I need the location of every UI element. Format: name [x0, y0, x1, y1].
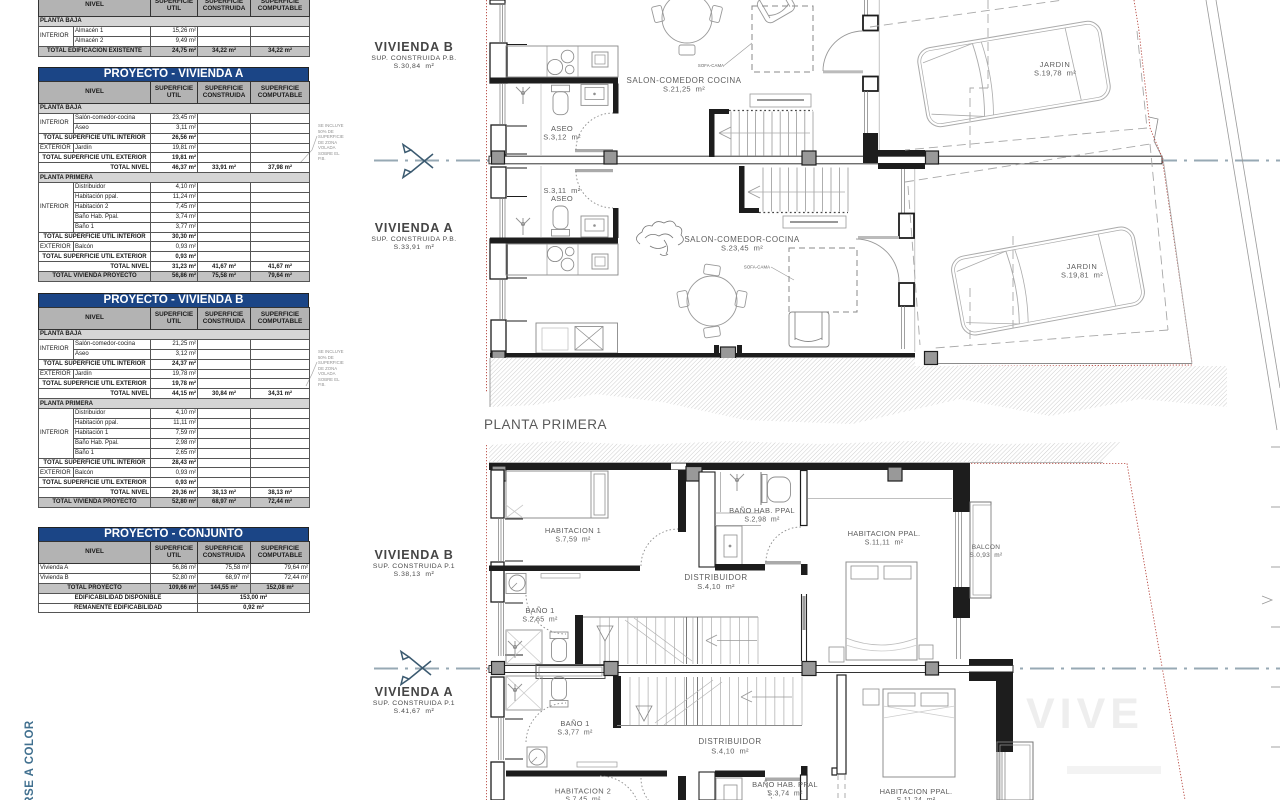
svg-text:VIVE: VIVE: [1026, 690, 1144, 738]
svg-text:HABITACION PPAL.: HABITACION PPAL.: [848, 529, 921, 538]
svg-text:S.3,12 m²: S.3,12 m²: [543, 133, 581, 142]
svg-text:HABITACION PPAL.: HABITACION PPAL.: [880, 787, 953, 796]
svg-text:BALCON: BALCON: [972, 544, 1001, 551]
svg-text:HABITACION 2: HABITACION 2: [555, 787, 611, 796]
svg-text:PLANTA PRIMERA: PLANTA PRIMERA: [484, 417, 607, 432]
svg-text:BAÑO 1: BAÑO 1: [560, 719, 589, 728]
svg-text:S.7,45 m²: S.7,45 m²: [565, 797, 601, 800]
svg-text:S.4,10 m²: S.4,10 m²: [711, 747, 749, 756]
svg-text:S.7,59 m²: S.7,59 m²: [555, 537, 591, 544]
svg-text:BAÑO HAB. PPAL: BAÑO HAB. PPAL: [752, 780, 818, 789]
svg-text:S.3,74 m²: S.3,74 m²: [767, 791, 803, 798]
svg-text:S.4,10 m²: S.4,10 m²: [697, 582, 735, 591]
svg-text:S.2,65 m²: S.2,65 m²: [522, 617, 558, 624]
svg-text:S.19,81 m²: S.19,81 m²: [1061, 271, 1103, 280]
svg-text:S.23,45 m²: S.23,45 m²: [721, 244, 763, 253]
svg-text:SOFA-CAMA: SOFA-CAMA: [744, 265, 770, 270]
svg-text:DISTRIBUIDOR: DISTRIBUIDOR: [684, 573, 747, 582]
svg-text:S.0,93 m²: S.0,93 m²: [970, 552, 1004, 559]
svg-text:S.11,11 m²: S.11,11 m²: [865, 540, 904, 547]
svg-text:SOFA-CAMA: SOFA-CAMA: [698, 63, 724, 68]
svg-text:S.2,98 m²: S.2,98 m²: [744, 517, 780, 524]
svg-text:HABITACION 1: HABITACION 1: [545, 526, 601, 535]
svg-text:ASEO: ASEO: [551, 194, 573, 203]
svg-text:DISTRIBUIDOR: DISTRIBUIDOR: [698, 737, 761, 746]
svg-text:S.19,78 m²: S.19,78 m²: [1034, 69, 1076, 78]
svg-text:S.21,25 m²: S.21,25 m²: [663, 85, 705, 94]
svg-text:S.3,77 m²: S.3,77 m²: [557, 730, 593, 737]
svg-text:BAÑO HAB. PPAL: BAÑO HAB. PPAL: [729, 506, 795, 515]
